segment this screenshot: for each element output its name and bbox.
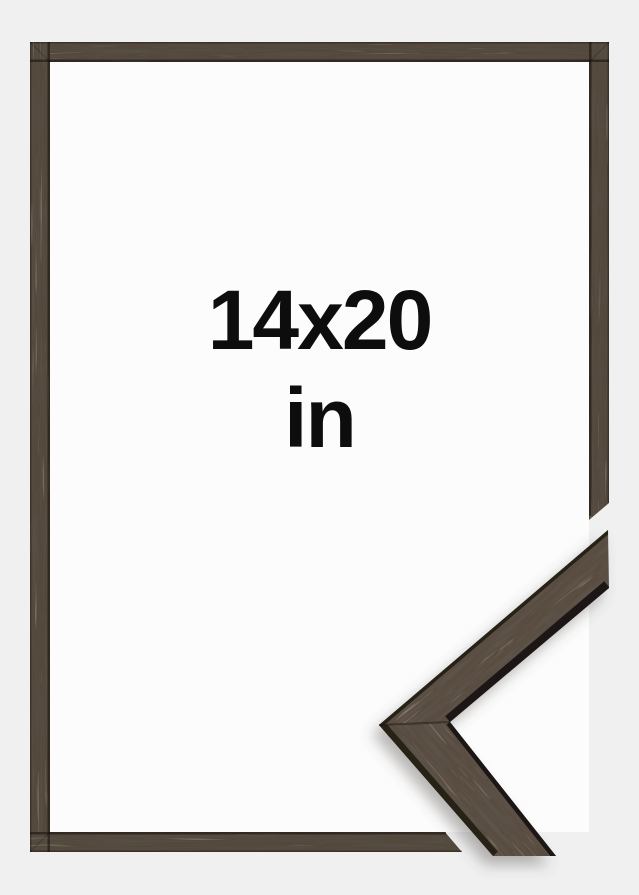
- frame-size-value: 14x20: [0, 271, 639, 369]
- frame-size-unit: in: [0, 369, 639, 467]
- product-image: 14x20 in: [0, 0, 639, 895]
- frame-border-bottom: [30, 832, 462, 852]
- frame-border-top: [30, 42, 609, 62]
- frame-size-label: 14x20 in: [0, 271, 639, 467]
